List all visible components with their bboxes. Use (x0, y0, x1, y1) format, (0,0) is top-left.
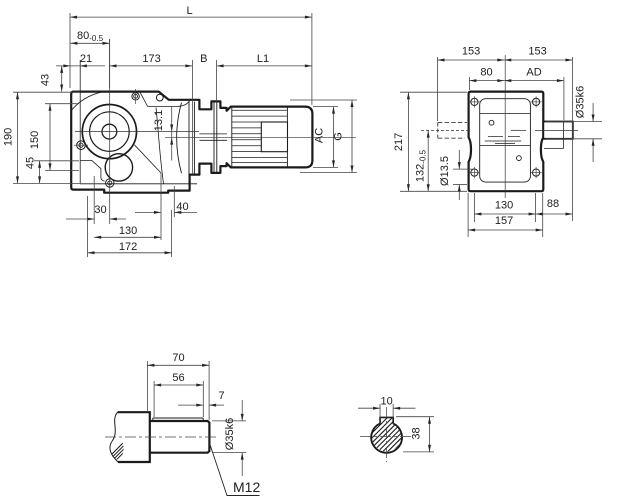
svg-text:70: 70 (172, 352, 184, 364)
svg-text:M12: M12 (233, 479, 260, 495)
svg-text:130: 130 (495, 200, 513, 212)
svg-text:45: 45 (25, 157, 37, 169)
svg-text:Ø13.5: Ø13.5 (439, 156, 451, 186)
svg-text:G: G (333, 132, 345, 141)
svg-text:AC: AC (314, 128, 326, 143)
svg-text:AD: AD (526, 67, 541, 79)
svg-text:21: 21 (80, 53, 92, 65)
svg-text:43: 43 (40, 74, 52, 86)
svg-text:38: 38 (411, 427, 423, 439)
svg-text:40: 40 (176, 201, 188, 213)
svg-text:13.1: 13.1 (153, 110, 165, 131)
svg-text:150: 150 (29, 131, 41, 149)
svg-text:7: 7 (218, 390, 224, 402)
svg-text:30: 30 (94, 204, 106, 216)
svg-text:L1: L1 (257, 53, 269, 65)
svg-text:157: 157 (495, 215, 513, 227)
svg-text:10: 10 (380, 396, 392, 408)
svg-text:Ø35k6: Ø35k6 (575, 86, 587, 118)
svg-text:88: 88 (547, 198, 559, 210)
svg-text:B: B (200, 53, 207, 65)
svg-text:56: 56 (172, 372, 184, 384)
svg-text:173: 173 (142, 53, 160, 65)
svg-text:153: 153 (528, 46, 546, 58)
svg-text:190: 190 (3, 128, 15, 146)
svg-text:217: 217 (393, 133, 405, 151)
svg-text:153: 153 (462, 46, 480, 58)
svg-text:Ø35k6: Ø35k6 (224, 418, 236, 450)
svg-text:L: L (186, 5, 192, 17)
svg-text:80: 80 (480, 67, 492, 79)
svg-text:130: 130 (119, 225, 137, 237)
svg-text:172: 172 (119, 241, 137, 253)
